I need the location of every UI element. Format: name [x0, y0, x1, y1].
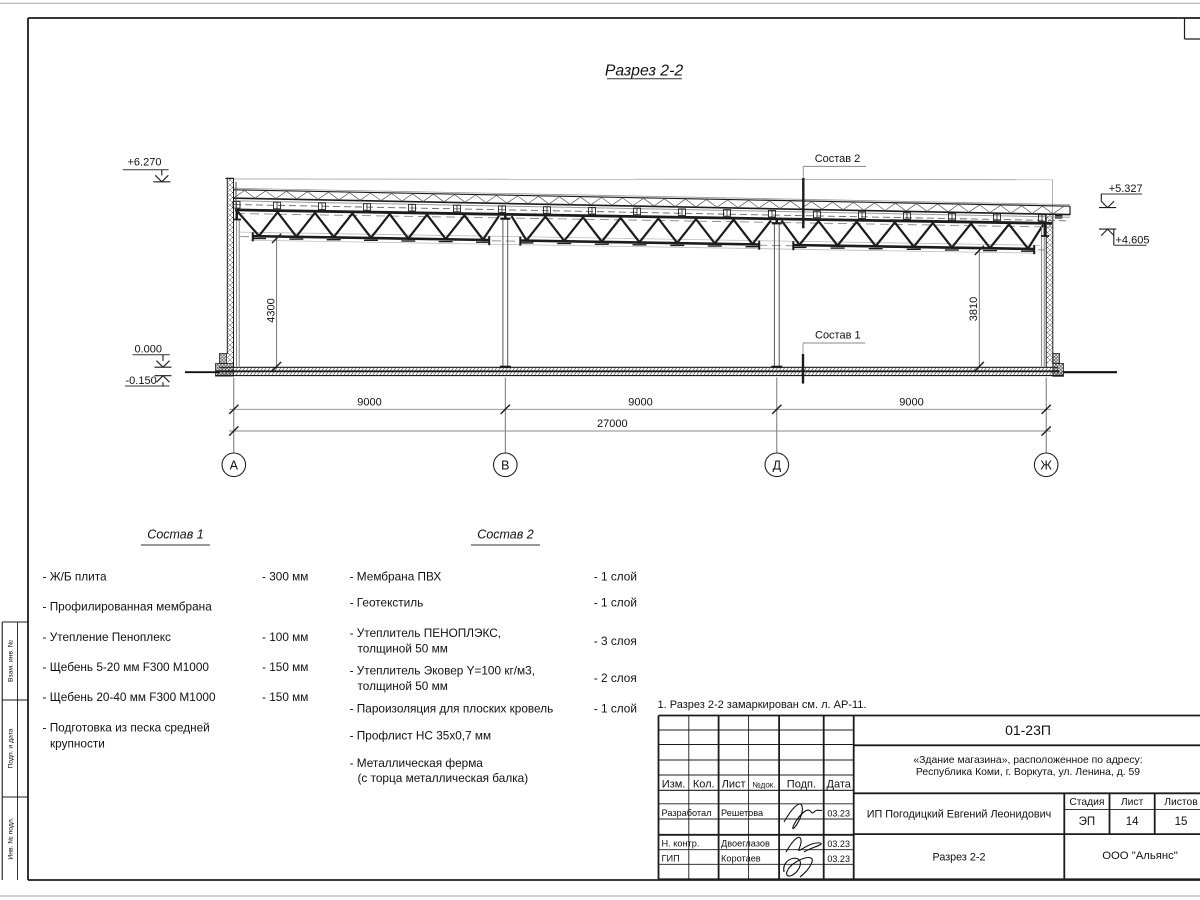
svg-text:15: 15	[1175, 816, 1188, 828]
svg-text:4300: 4300	[265, 298, 277, 322]
svg-text:- Утеплитель Эковер Y=100 кг/м: - Утеплитель Эковер Y=100 кг/м3,	[350, 664, 535, 678]
svg-text:Разрез 2-2: Разрез 2-2	[605, 63, 683, 80]
svg-text:- Профилированная мембрана: - Профилированная мембрана	[43, 600, 213, 614]
svg-text:ООО "Альянс": ООО "Альянс"	[1102, 850, 1178, 862]
svg-text:Ж: Ж	[1040, 458, 1052, 472]
svg-text:- Ж/Б плита: - Ж/Б плита	[43, 570, 108, 584]
svg-text:- 1 слой: - 1 слой	[594, 596, 637, 610]
svg-text:- 1 слой: - 1 слой	[594, 702, 637, 716]
svg-text:9000: 9000	[628, 397, 652, 409]
svg-text:+6.270: +6.270	[128, 156, 162, 168]
svg-text:- Металлическая ферма: - Металлическая ферма	[350, 756, 484, 770]
svg-text:Лист: Лист	[722, 778, 746, 790]
svg-text:Кол.: Кол.	[693, 778, 715, 790]
svg-text:- Профлист НС 35х0,7 мм: - Профлист НС 35х0,7 мм	[350, 729, 492, 743]
svg-text:- Пароизоляция для плоских кро: - Пароизоляция для плоских кровель	[350, 702, 554, 716]
svg-text:+4.605: +4.605	[1116, 234, 1150, 246]
svg-text:Разрез 2-2: Разрез 2-2	[932, 852, 985, 864]
svg-text:Состав 2: Состав 2	[477, 528, 533, 542]
svg-text:- 3 слоя: - 3 слоя	[594, 634, 637, 648]
svg-text:Стадия: Стадия	[1069, 797, 1104, 808]
svg-text:Состав 1: Состав 1	[147, 528, 203, 542]
svg-text:3810: 3810	[968, 297, 980, 321]
svg-text:№док.: №док.	[752, 780, 775, 789]
svg-text:27000: 27000	[597, 418, 628, 430]
svg-text:толщиной 50 мм: толщиной 50 мм	[358, 641, 448, 655]
svg-text:Дата: Дата	[827, 778, 852, 790]
svg-text:03.23: 03.23	[827, 854, 850, 864]
svg-text:- 150 мм: - 150 мм	[262, 690, 308, 704]
svg-text:Н. контр.: Н. контр.	[662, 839, 700, 849]
svg-text:Подп. и дата: Подп. и дата	[8, 728, 15, 768]
svg-text:ЭП: ЭП	[1079, 816, 1096, 828]
svg-text:Лист: Лист	[1121, 797, 1144, 808]
svg-text:«Здание магазина», расположенн: «Здание магазина», расположенное по адре…	[913, 755, 1142, 766]
svg-text:9000: 9000	[357, 397, 381, 409]
svg-text:1. Разрез 2-2 замаркирован см.: 1. Разрез 2-2 замаркирован см. л. АР-11.	[658, 699, 867, 711]
svg-text:В: В	[501, 458, 509, 472]
svg-text:0.000: 0.000	[135, 344, 163, 356]
svg-text:- Щебень 5-20 мм F300 М1000: - Щебень 5-20 мм F300 М1000	[43, 660, 210, 674]
svg-text:Состав 2: Состав 2	[815, 153, 861, 165]
svg-text:9000: 9000	[899, 397, 923, 409]
svg-text:(с торца металлическая балка): (с торца металлическая балка)	[358, 771, 529, 785]
svg-text:- Щебень 20-40 мм F300 М1000: - Щебень 20-40 мм F300 М1000	[43, 690, 216, 704]
svg-text:- 150 мм: - 150 мм	[262, 660, 308, 674]
svg-text:ИП Погодицкий Евгений Леонидов: ИП Погодицкий Евгений Леонидович	[867, 809, 1052, 821]
svg-text:- Утеплитель ПЕНОПЛЭКС,: - Утеплитель ПЕНОПЛЭКС,	[350, 626, 501, 640]
svg-text:+5.327: +5.327	[1109, 183, 1143, 195]
svg-text:Двоеглазов: Двоеглазов	[721, 839, 770, 849]
svg-text:01-23П: 01-23П	[1005, 722, 1051, 738]
svg-text:Состав 1: Состав 1	[815, 329, 861, 341]
svg-text:Листов: Листов	[1164, 797, 1198, 808]
svg-text:- Утепление Пеноплекс: - Утепление Пеноплекс	[43, 630, 172, 644]
svg-text:Республика Коми, г. Воркута, у: Республика Коми, г. Воркута, ул. Ленина,…	[916, 766, 1140, 778]
svg-text:- Мембрана ПВХ: - Мембрана ПВХ	[350, 570, 442, 584]
svg-text:Инв. № подл.: Инв. № подл.	[8, 817, 15, 859]
svg-text:Взам. инв. №: Взам. инв. №	[8, 640, 15, 682]
svg-text:- Подготовка из песка средней: - Подготовка из песка средней	[43, 721, 210, 735]
svg-text:- 300 мм: - 300 мм	[262, 570, 308, 584]
svg-text:ГИП: ГИП	[662, 854, 680, 864]
svg-text:А: А	[230, 458, 239, 472]
svg-text:- Геотекстиль: - Геотекстиль	[350, 596, 424, 610]
svg-text:03.23: 03.23	[827, 839, 850, 849]
svg-text:-0.150: -0.150	[126, 375, 157, 387]
svg-text:Разработал: Разработал	[662, 808, 712, 818]
svg-text:- 100 мм: - 100 мм	[262, 630, 308, 644]
svg-text:толщиной 50 мм: толщиной 50 мм	[358, 679, 448, 693]
svg-text:- 1 слой: - 1 слой	[594, 570, 637, 584]
svg-text:Решетова: Решетова	[721, 808, 764, 818]
svg-text:- 2 слоя: - 2 слоя	[594, 671, 637, 685]
svg-text:03.23: 03.23	[827, 809, 850, 819]
svg-text:Изм.: Изм.	[662, 778, 686, 790]
svg-text:Коротаев: Коротаев	[721, 854, 761, 864]
svg-text:крупности: крупности	[50, 736, 105, 750]
svg-text:14: 14	[1126, 816, 1139, 828]
svg-text:Подп.: Подп.	[787, 778, 816, 790]
svg-text:Д: Д	[773, 458, 782, 472]
